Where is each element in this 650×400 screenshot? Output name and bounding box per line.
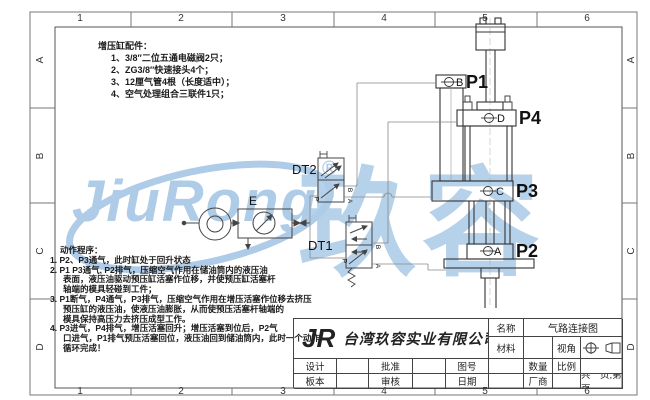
- drawing-sheet: 玖容 JiuRong ®: [0, 0, 650, 400]
- oil-reservoir: [436, 75, 466, 181]
- company-cell: JR 台湾玖容实业有限公司: [294, 319, 489, 359]
- dt1-port-p: P: [341, 259, 348, 263]
- review-value: [413, 374, 446, 389]
- approve-label: 批准: [369, 359, 413, 374]
- name-label: 名称: [489, 319, 524, 337]
- version-label: 板本: [294, 374, 337, 389]
- qty-label: 数量: [524, 359, 553, 374]
- solenoid-valve-dt2: [318, 151, 344, 202]
- accessories-item: 2、ZG3/8″快速接头4个；: [111, 64, 235, 76]
- grid-col-1-top: 1: [65, 13, 95, 24]
- air-source-icon: [199, 208, 231, 240]
- solenoid-valve-dt1: [346, 215, 372, 287]
- action-line: 循环完成！: [63, 344, 320, 354]
- grid-col-1-bottom: 1: [65, 386, 95, 397]
- dt2-port-a: A: [346, 199, 353, 204]
- accessories-title: 增压缸配件：: [98, 40, 235, 52]
- title-block: JR 台湾玖容实业有限公司 名称 气路连接图 材料 视角 设计 批准 图号 数量…: [293, 318, 622, 388]
- port-label-p4: P4: [519, 108, 541, 128]
- air-unit-label-e: E: [249, 194, 257, 208]
- action-procedure-note: 动作程序： 1. P2、P3通气，此时缸处于回升状态 2. P1 P3通气, P…: [50, 246, 320, 354]
- scale-label: 比例: [553, 359, 581, 374]
- grid-col-3-top: 3: [268, 13, 298, 24]
- accessories-item: 1、3/8″二位五通电磁阀2只；: [111, 52, 235, 64]
- approve-value: [413, 359, 446, 374]
- port-label-p3: P3: [516, 181, 538, 201]
- vendor-label: 厂商: [524, 374, 553, 389]
- accessories-item: 3、12厘气管4根（长度适中）；: [111, 76, 235, 88]
- grid-col-5-top: 5: [470, 13, 500, 24]
- company-logo: JR: [302, 323, 335, 354]
- vendor-value: [553, 374, 581, 389]
- review-label: 审核: [369, 374, 413, 389]
- accessories-item: 4、空气处理组合三联件1只；: [111, 88, 235, 100]
- port-label-p2: P2: [516, 241, 538, 261]
- projection-symbols-cell: [581, 337, 623, 359]
- grid-row-d-right: D: [626, 337, 640, 357]
- date-label: 日期: [446, 374, 489, 389]
- design-label: 设计: [294, 359, 337, 374]
- grid-col-6-top: 6: [572, 13, 602, 24]
- spring-icon: [348, 268, 355, 287]
- port-letter-c: C: [496, 186, 504, 198]
- grid-row-d-left: D: [35, 337, 49, 357]
- grid-row-c-right: C: [626, 241, 640, 261]
- accessories-note: 增压缸配件： 1、3/8″二位五通电磁阀2只； 2、ZG3/8″快速接头4个； …: [98, 40, 235, 100]
- grid-col-2-bottom: 2: [166, 386, 196, 397]
- grid-row-c-left: C: [35, 241, 49, 261]
- material-value: [524, 337, 553, 359]
- booster-cylinder: [432, 18, 534, 308]
- dt1-port-b: B: [374, 245, 381, 249]
- grid-col-2-top: 2: [166, 13, 196, 24]
- view-label: 视角: [553, 337, 581, 359]
- port-letter-a: A: [494, 246, 502, 258]
- dt2-port-b: B: [346, 188, 353, 192]
- drawing-no-value: [489, 359, 524, 374]
- bolt-icons: [463, 96, 512, 110]
- pages-label: 共 页,第 页: [581, 374, 623, 389]
- dt1-port-a: A: [374, 264, 381, 269]
- date-value: [489, 374, 524, 389]
- drawing-no-label: 图号: [446, 359, 489, 374]
- company-name: 台湾玖容实业有限公司: [343, 328, 489, 349]
- grid-row-a-right: A: [626, 50, 640, 70]
- projection-angle-icon: [582, 340, 622, 356]
- material-label: 材料: [489, 337, 524, 359]
- valve-label-dt2: DT2: [292, 162, 317, 177]
- port-letter-b: B: [456, 77, 463, 89]
- grid-row-b-left: B: [35, 146, 49, 166]
- dt2-port-p: P: [313, 197, 320, 201]
- solenoid-icon: [320, 151, 327, 158]
- scale-value: [581, 359, 623, 374]
- grid-row-b-right: B: [626, 146, 640, 166]
- solenoid-icon: [349, 215, 356, 222]
- design-value: [337, 359, 369, 374]
- port-letter-d: D: [497, 113, 505, 125]
- port-label-p1: P1: [466, 72, 488, 92]
- drawing-name-value: 气路连接图: [524, 319, 623, 337]
- grid-row-a-left: A: [35, 50, 49, 70]
- version-value: [337, 374, 369, 389]
- air-source-and-frl: [182, 208, 310, 249]
- grid-col-4-top: 4: [369, 13, 399, 24]
